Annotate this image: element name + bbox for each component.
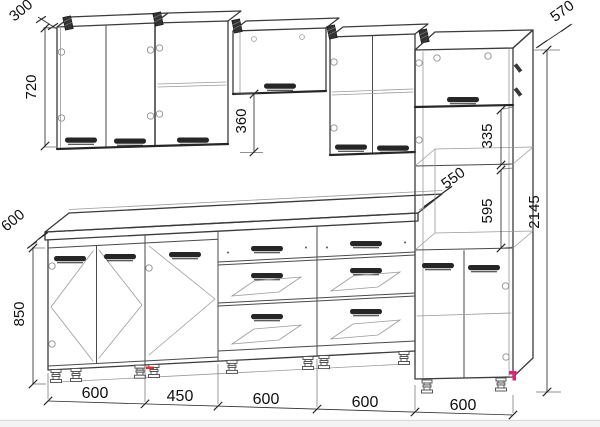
- drawing-canvas: 300 720 360 600 850: [0, 0, 600, 427]
- foot-icon: [51, 370, 62, 383]
- foot-icon: [149, 365, 160, 378]
- dim-label-width-5: 600: [450, 397, 477, 414]
- dim-label-width-4: 600: [352, 394, 379, 411]
- foot-icon: [399, 352, 410, 365]
- foot-icon: [135, 365, 146, 378]
- foot-icon: [496, 378, 507, 391]
- dim-label-595: 595: [479, 198, 496, 223]
- foot-icon: [71, 369, 82, 382]
- red-marker: [146, 367, 154, 370]
- foot-icon: [227, 360, 238, 373]
- dim-label-width-3: 600: [253, 391, 280, 408]
- dim-label-2145: 2145: [526, 195, 543, 228]
- dim-label-720: 720: [23, 74, 40, 99]
- dim-label-width-1: 600: [82, 385, 109, 402]
- dim-label-width-2: 450: [167, 388, 194, 405]
- foot-icon: [319, 356, 330, 369]
- foot-icon: [303, 357, 314, 370]
- dim-label-850: 850: [11, 301, 28, 326]
- dim-label-335: 335: [479, 123, 496, 148]
- drawing-background: [0, 0, 600, 427]
- kitchen-technical-drawing: 300 720 360 600 850: [0, 0, 600, 427]
- footer-strip: [0, 421, 600, 427]
- foot-icon: [422, 380, 433, 393]
- dim-label-360: 360: [233, 108, 250, 133]
